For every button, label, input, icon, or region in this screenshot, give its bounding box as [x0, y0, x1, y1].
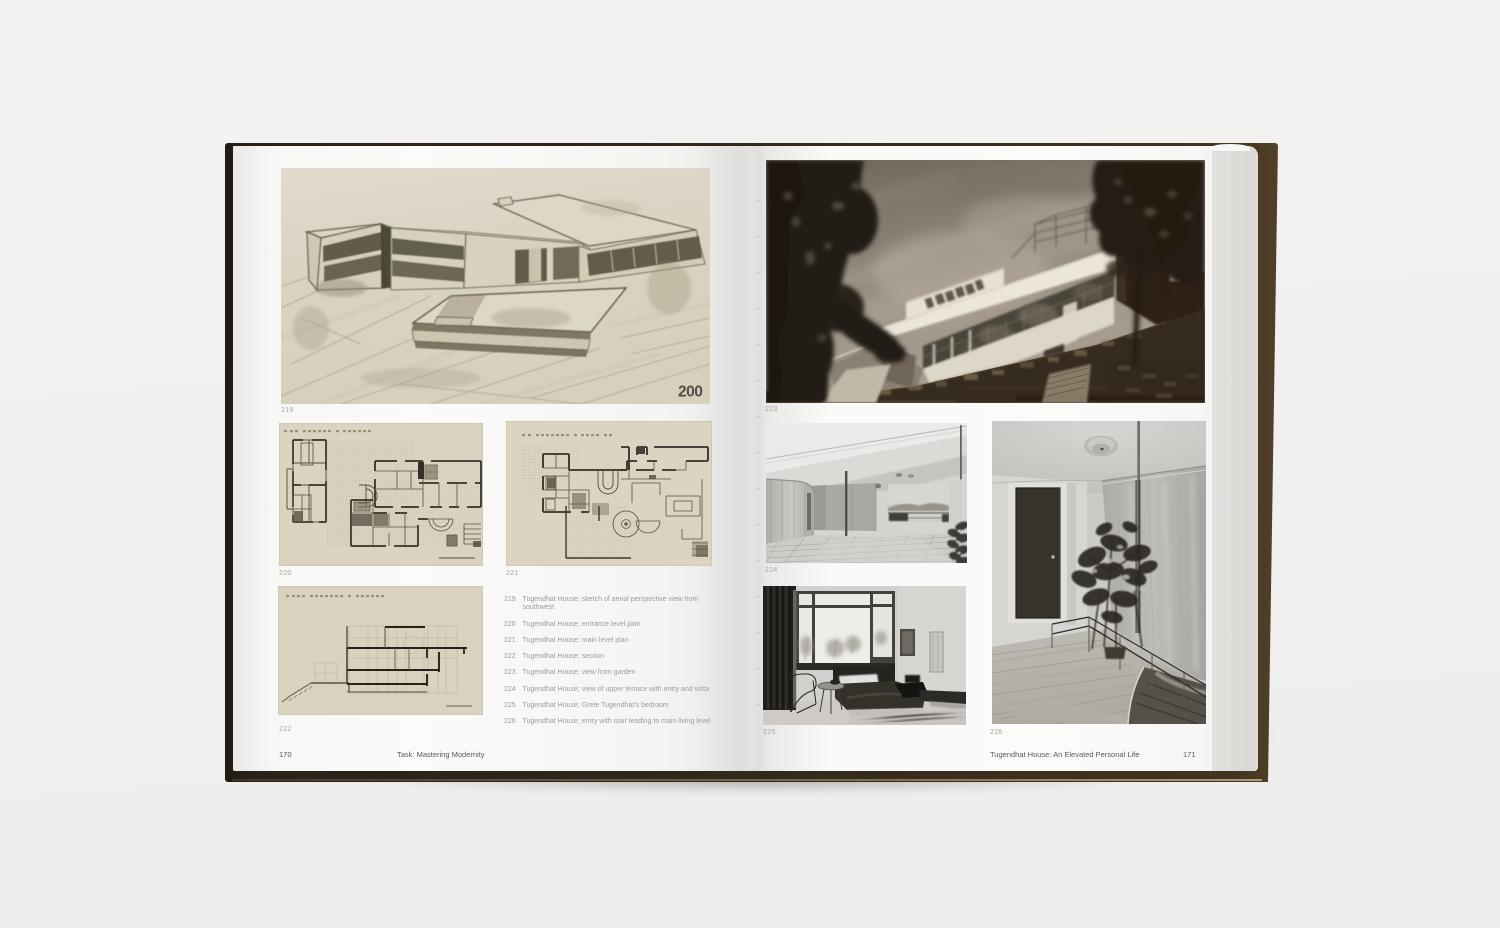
svg-text:200: 200	[678, 384, 702, 401]
